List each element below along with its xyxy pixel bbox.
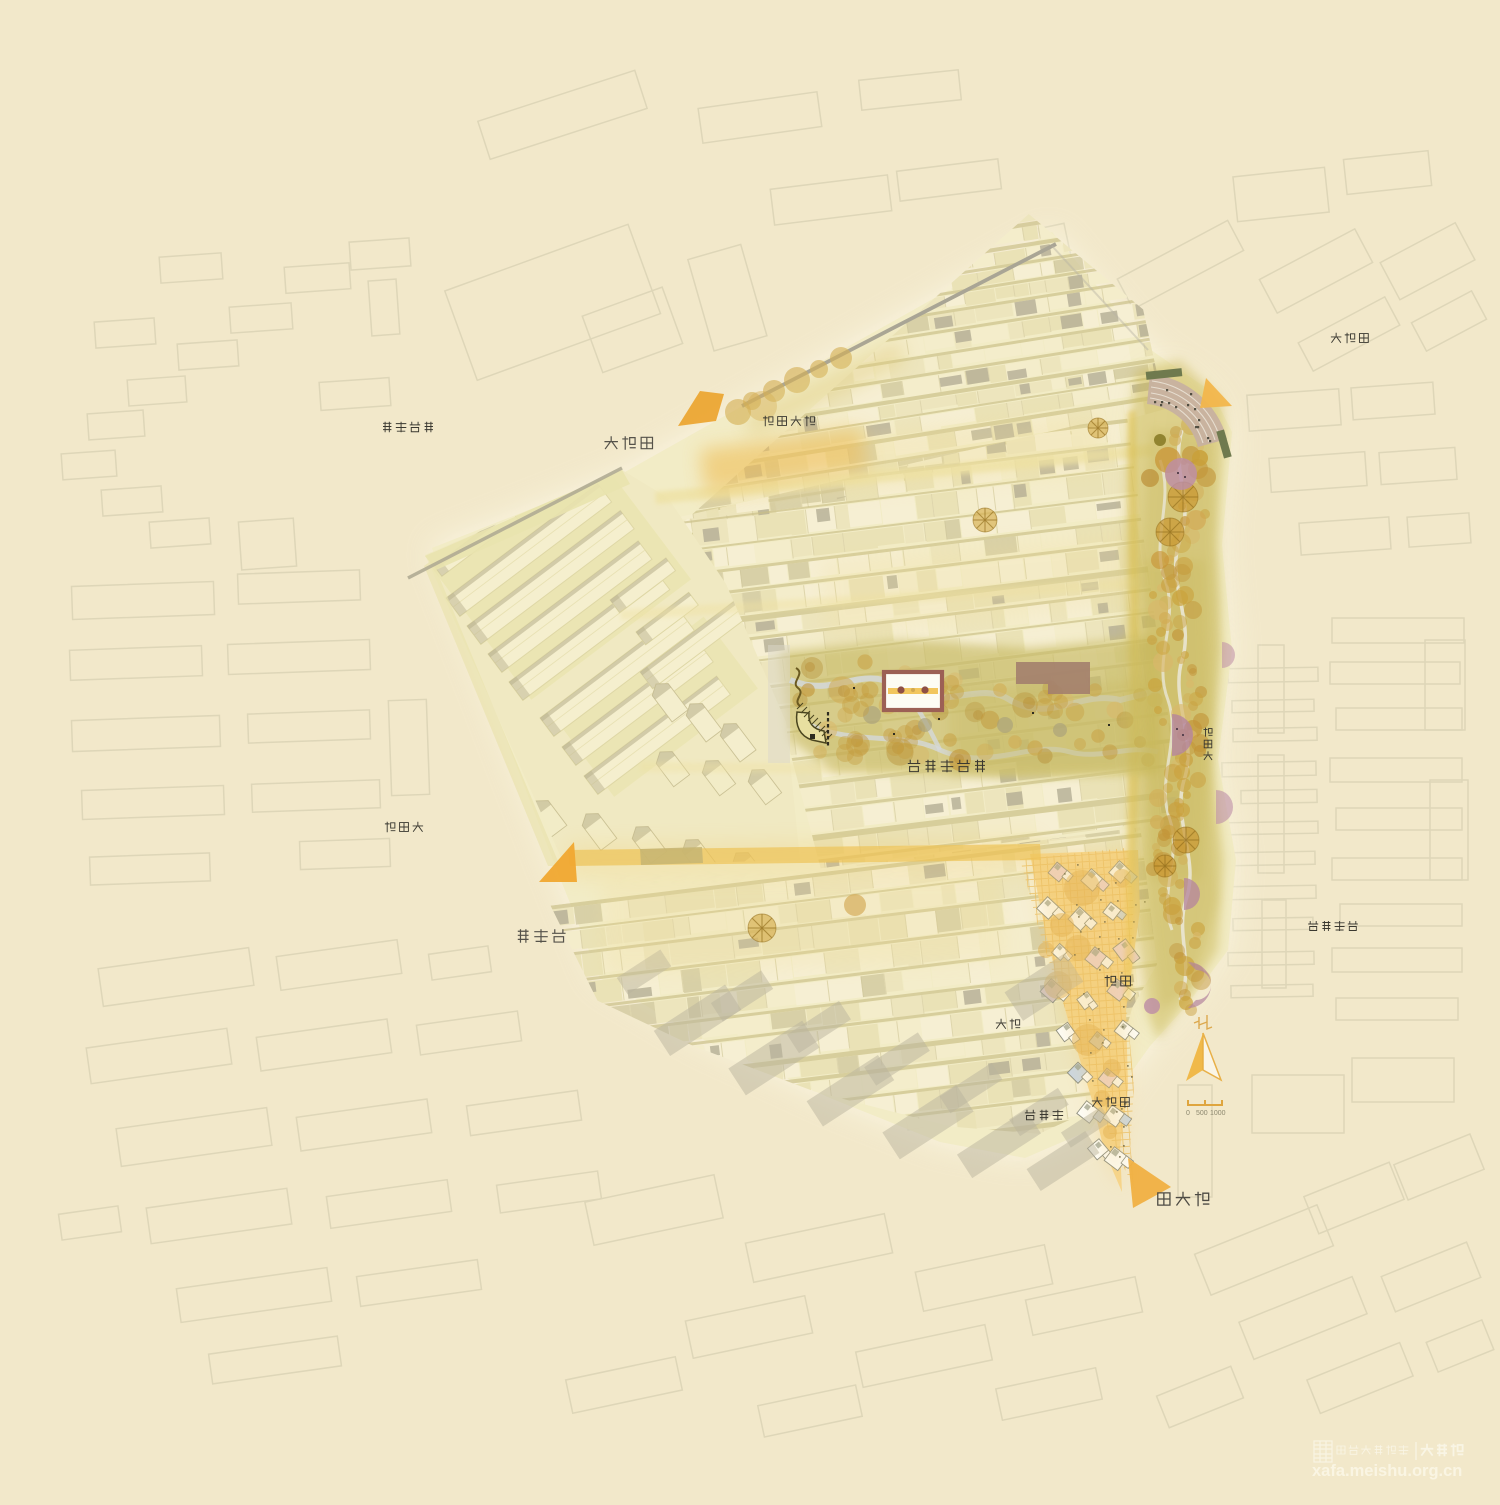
svg-text:1000: 1000: [1210, 1110, 1226, 1117]
svg-text:500: 500: [1196, 1110, 1208, 1117]
svg-text:xafa.meishu.org.cn: xafa.meishu.org.cn: [1312, 1462, 1462, 1480]
svg-text:0: 0: [1186, 1110, 1190, 1117]
